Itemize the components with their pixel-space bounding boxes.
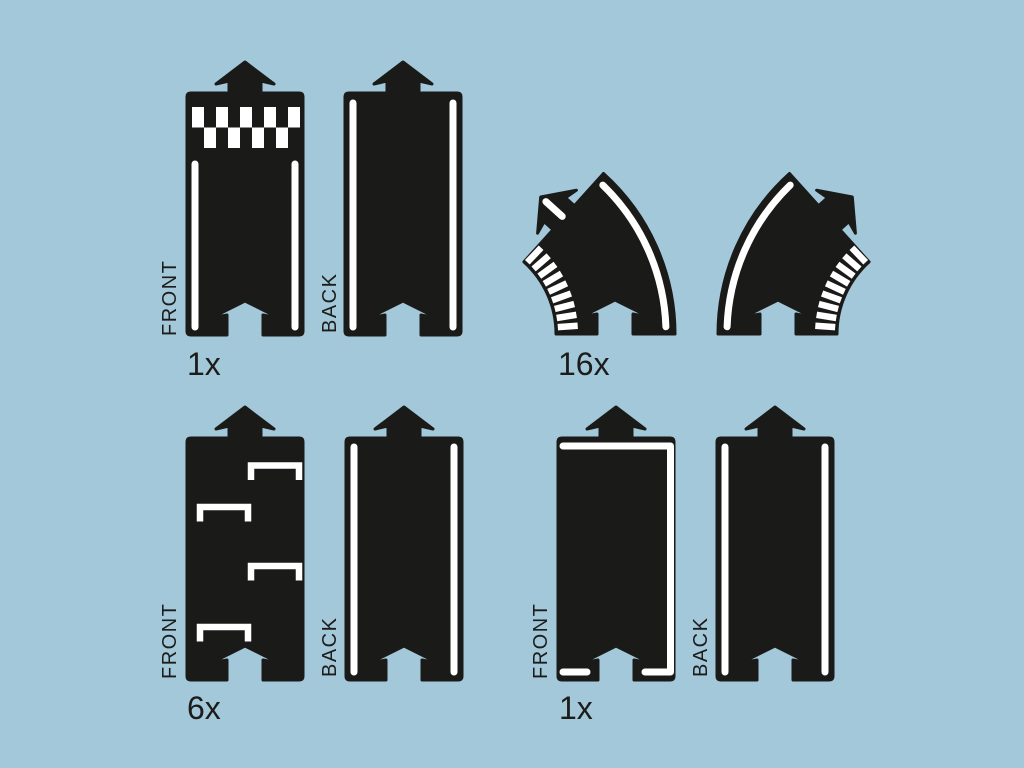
finish-straight-back-piece (344, 62, 462, 335)
piece-count: 6x (187, 692, 221, 724)
parking-straight-back-piece (345, 407, 463, 680)
parking-straight-front-piece (186, 407, 304, 680)
back-label: BACK (318, 617, 342, 677)
front-label: FRONT (158, 260, 182, 336)
front-label: FRONT (529, 603, 553, 679)
front-label: FRONT (158, 603, 182, 679)
piece-count: 1x (559, 692, 593, 724)
back-label: BACK (689, 617, 713, 677)
track-pieces-diagram: FRONT BACK 1x 16x FRONT BACK 6x FRONT B (0, 0, 1024, 768)
finish-straight-front-piece (186, 62, 304, 335)
piece-count: 16x (558, 348, 610, 380)
track-piece-shape (187, 62, 303, 335)
piece-count: 1x (187, 348, 221, 380)
curve-front-piece (521, 162, 681, 337)
track-piece-shape (346, 407, 462, 680)
junction-straight-front-piece (557, 407, 675, 680)
track-piece-shape (717, 407, 833, 680)
track-piece-shape (345, 62, 461, 335)
back-label: BACK (318, 273, 342, 333)
curve-back-piece (712, 162, 872, 337)
junction-straight-back-piece (716, 407, 834, 680)
finish-checker-band (192, 107, 300, 148)
